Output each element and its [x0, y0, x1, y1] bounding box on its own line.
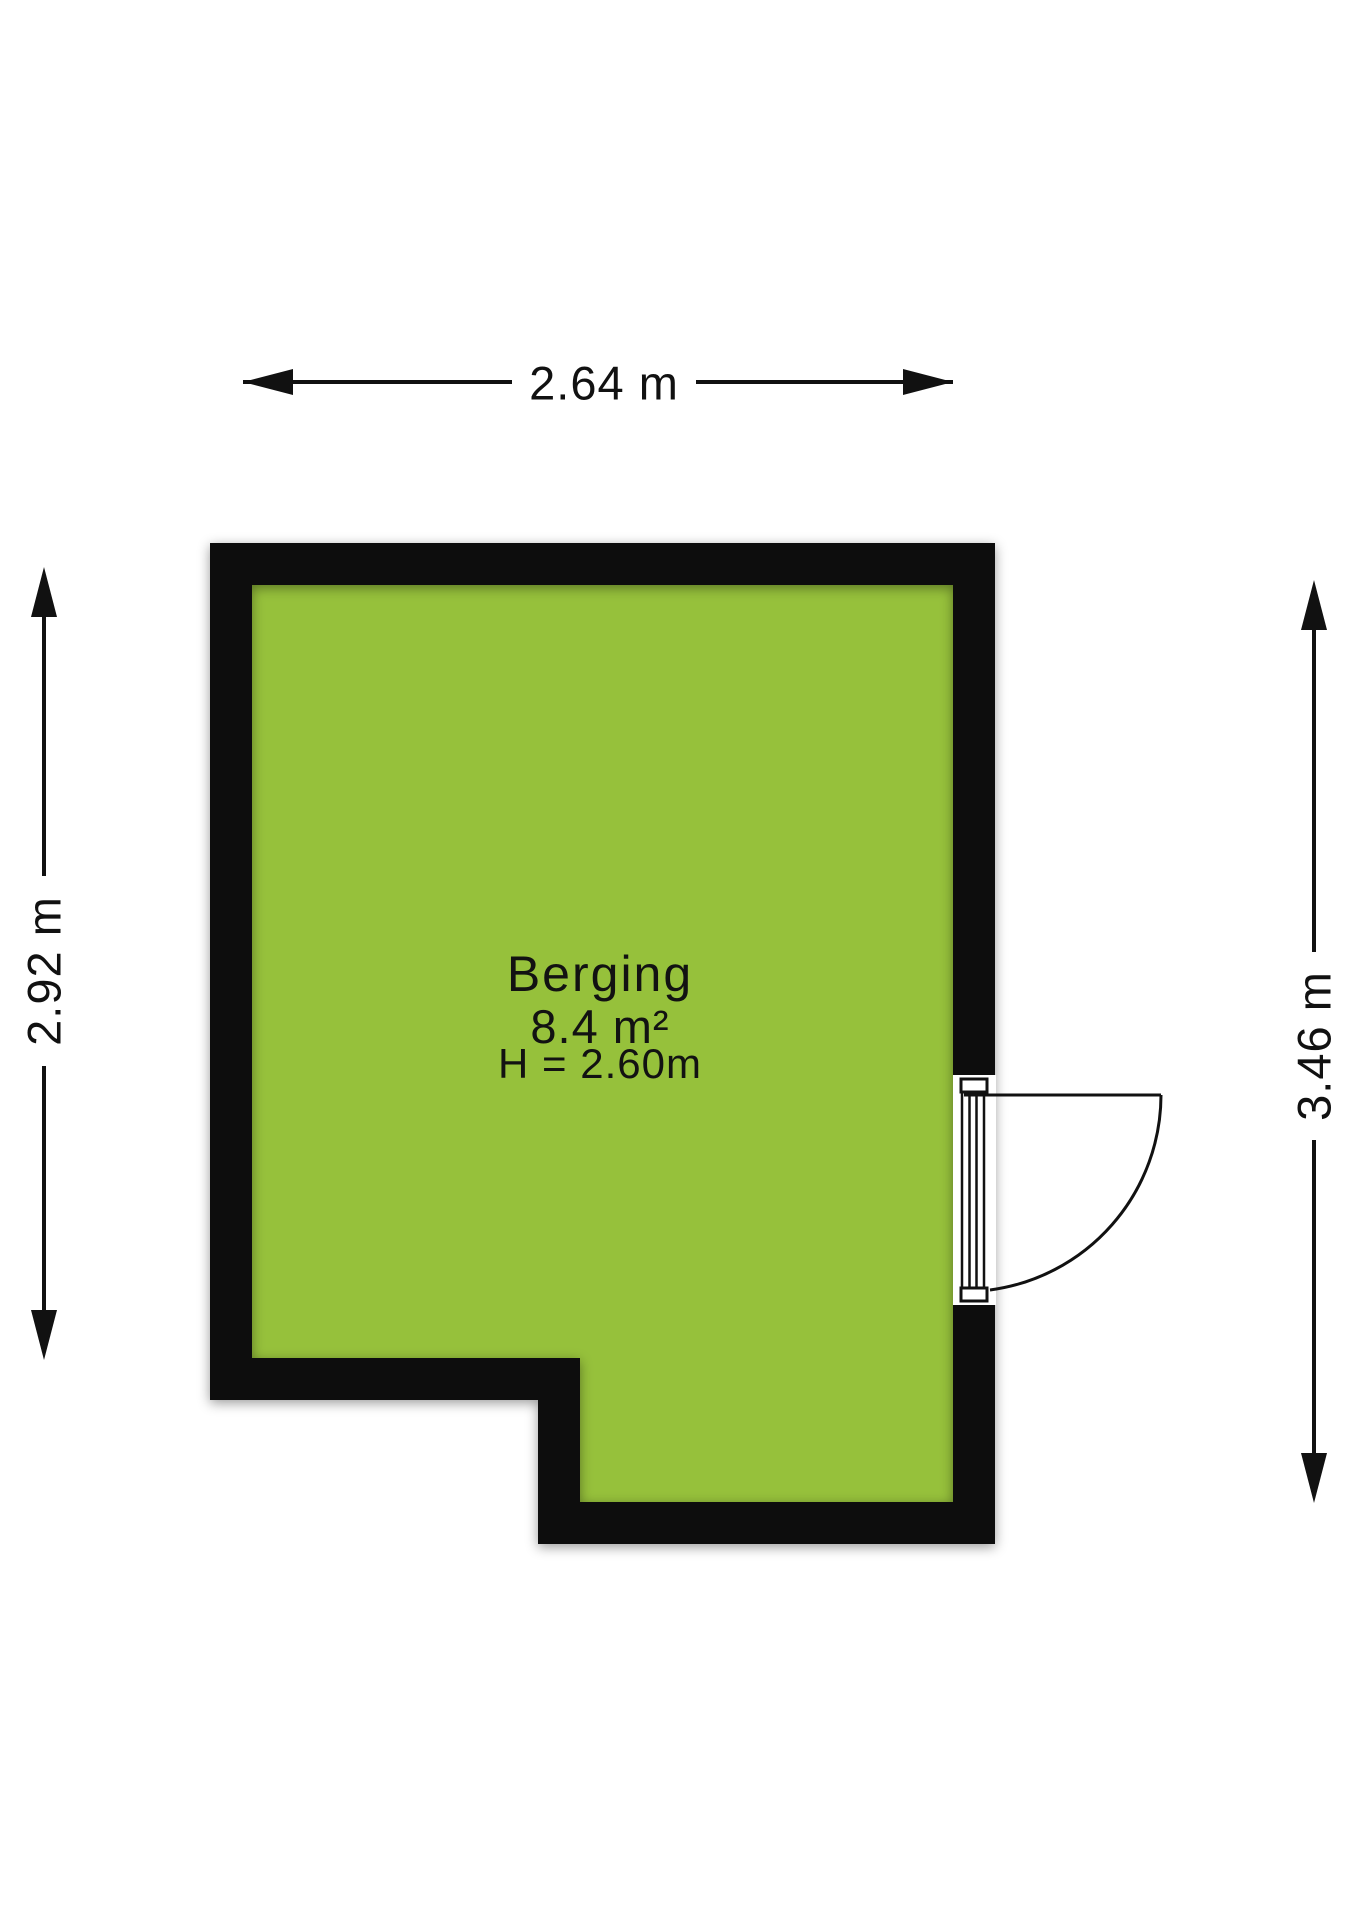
floorplan-page: 2.64 m 2.92 m 3.46 m Berging 8.4 m² H = …: [0, 0, 1358, 1920]
arrowhead-right-icon: [903, 369, 953, 395]
door-jamb-top: [961, 1079, 987, 1092]
dimension-top-label: 2.64 m: [529, 357, 679, 410]
dimension-left-label: 2.92 m: [18, 896, 71, 1046]
dimension-top: 2.64 m: [243, 357, 953, 410]
door: [953, 1075, 1161, 1305]
door-opening: [953, 1075, 996, 1305]
arrowhead-down-icon: [1301, 1453, 1327, 1503]
room-ceiling-height: H = 2.60m: [498, 1040, 702, 1087]
floorplan-image: 2.64 m 2.92 m 3.46 m Berging 8.4 m² H = …: [0, 0, 1358, 1920]
dimension-right-label: 3.46 m: [1288, 971, 1341, 1121]
dimension-right: 3.46 m: [1288, 580, 1341, 1503]
room-name: Berging: [507, 946, 693, 1002]
arrowhead-up-icon: [1301, 580, 1327, 630]
dimension-left: 2.92 m: [18, 567, 71, 1360]
arrowhead-down-icon: [31, 1310, 57, 1360]
door-swing-arc: [990, 1095, 1161, 1290]
door-jamb-bottom: [961, 1288, 987, 1301]
arrowhead-up-icon: [31, 567, 57, 617]
arrowhead-left-icon: [243, 369, 293, 395]
